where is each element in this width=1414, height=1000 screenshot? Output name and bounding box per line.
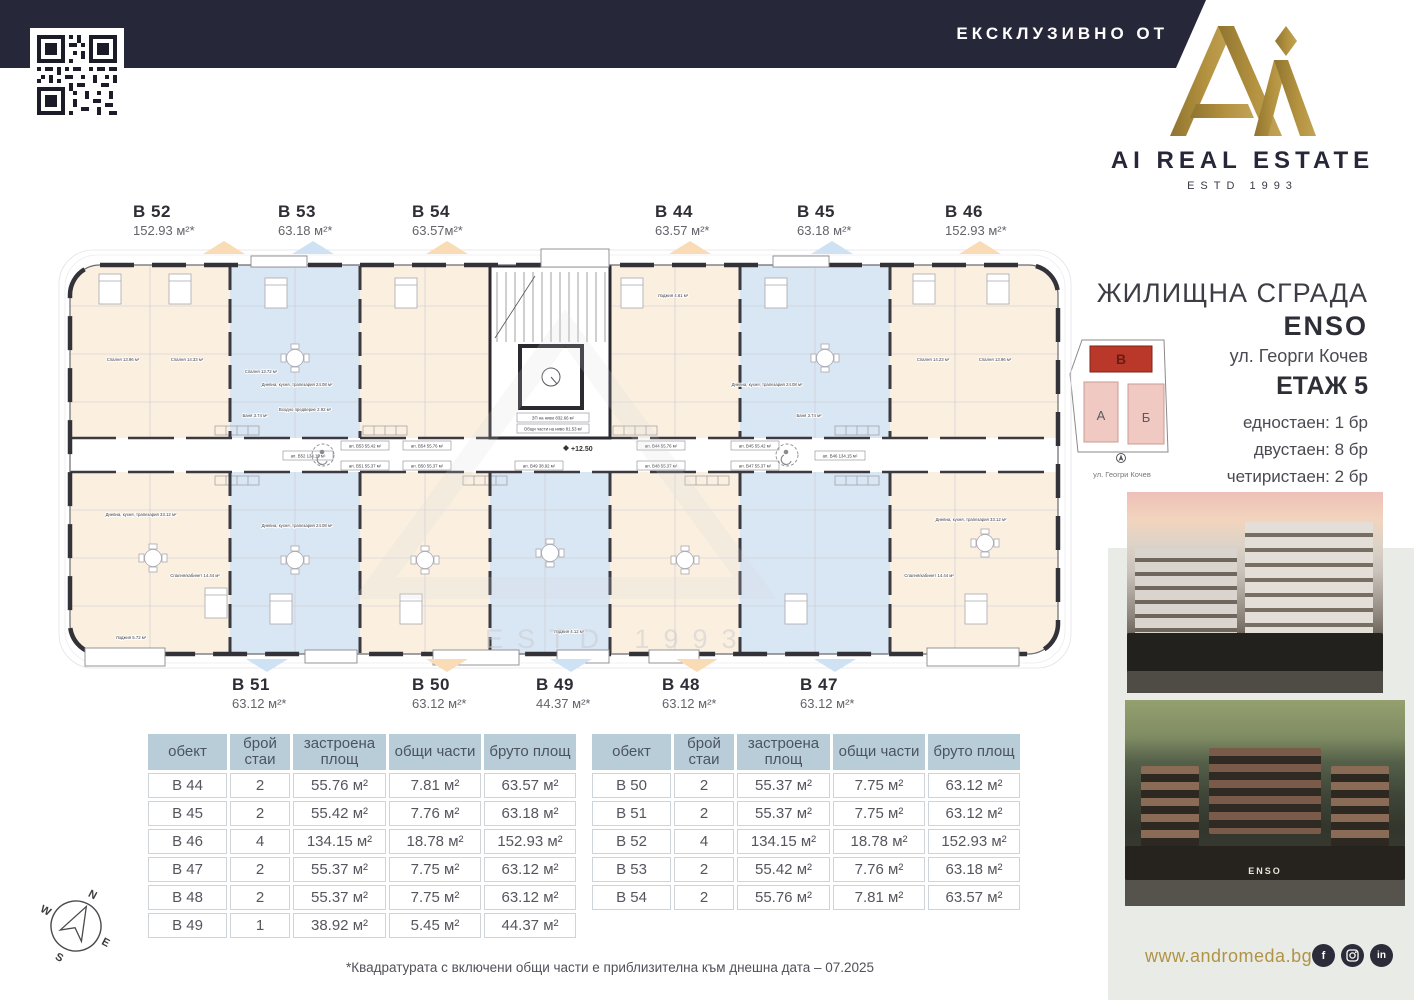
svg-text:Спалня 14.23 м²: Спалня 14.23 м² [917, 357, 950, 362]
table-cell: 38.92 м² [293, 913, 386, 938]
table-cell: 2 [674, 885, 734, 910]
table-cell: B 44 [148, 773, 227, 798]
svg-text:Дневна, кухня, трапезария 24.0: Дневна, кухня, трапезария 24.08 м² [262, 523, 333, 528]
table-cell: B 45 [148, 801, 227, 826]
compass-e: E [99, 936, 111, 950]
building-render-photo-1 [1127, 492, 1383, 693]
compass-n: N [86, 888, 99, 902]
render2-building-center [1209, 748, 1321, 834]
table-cell: B 50 [592, 773, 671, 798]
building-render-photo-2: ENSO [1125, 700, 1405, 906]
table-cell: 63.57 м² [484, 773, 576, 798]
qr-code [30, 28, 124, 122]
unit-label-b46: B 46 152.93 м²* [945, 202, 1075, 254]
unit-label-b52: B 52 152.93 м²* [133, 202, 263, 254]
svg-text:Дневна, кухня, трапезария 33.1: Дневна, кухня, трапезария 33.12 м² [106, 512, 177, 517]
table-cell: 1 [230, 913, 290, 938]
table-cell: 2 [230, 857, 290, 882]
table-cell: 55.42 м² [293, 801, 386, 826]
unit-label-b48: B 48 63.12 м²* [662, 656, 792, 711]
pointer-triangle [959, 241, 1001, 254]
render1-building-right [1245, 522, 1373, 640]
siteplan-label-v: В [1116, 351, 1126, 367]
siteplan-label-a: А [1097, 408, 1106, 423]
render2-building-left [1141, 766, 1199, 854]
svg-text:Спалня/кабинет 14.44 м²: Спалня/кабинет 14.44 м² [904, 573, 954, 578]
pointer-triangle [426, 241, 468, 254]
table-cell: 4 [674, 829, 734, 854]
unit-label-b47: B 47 63.12 м²* [800, 656, 930, 711]
table-cell: 55.42 м² [737, 857, 830, 882]
svg-text:Спалня/кабинет 14.44 м²: Спалня/кабинет 14.44 м² [170, 573, 220, 578]
table-row: B 49138.92 м²5.45 м²44.37 м² [148, 913, 576, 938]
svg-text:Лоджия 5.72 м²: Лоджия 5.72 м² [116, 635, 147, 640]
table-cell: 134.15 м² [737, 829, 830, 854]
pointer-triangle [676, 659, 718, 672]
render1-building-left [1135, 548, 1237, 640]
unit-label-b49: B 49 44.37 м²* [536, 656, 666, 711]
table-row: B 524134.15 м²18.78 м²152.93 м² [592, 829, 1020, 854]
svg-text:Спалня 13.96 м²: Спалня 13.96 м² [107, 357, 140, 362]
footnote: *Квадратурата с включени общи части е пр… [280, 960, 940, 975]
render2-enso-sign: ENSO [1248, 866, 1282, 876]
pointer-triangle [426, 659, 468, 672]
website-link[interactable]: www.andromeda.bg [1145, 946, 1312, 967]
table-cell: 55.76 м² [737, 885, 830, 910]
render2-road [1125, 880, 1405, 906]
col-header: бруто площ [928, 734, 1020, 770]
table-cell: B 48 [148, 885, 227, 910]
compass-rose: N E S W [33, 883, 119, 974]
table-cell: B 46 [148, 829, 227, 854]
linkedin-icon[interactable]: in [1370, 944, 1393, 967]
brand-mountain-icon [1168, 20, 1318, 138]
brand-name: AI REAL ESTATE [1100, 147, 1385, 175]
svg-text:ап. B50 55.37 м²: ап. B50 55.37 м² [411, 464, 444, 469]
table-cell: 55.37 м² [293, 885, 386, 910]
pointer-triangle [292, 241, 334, 254]
table-row: B 45255.42 м²7.76 м²63.18 м² [148, 801, 576, 826]
facebook-icon[interactable]: f [1312, 944, 1335, 967]
table-cell: 63.12 м² [484, 885, 576, 910]
table-cell: 2 [230, 885, 290, 910]
col-header: бруто площ [484, 734, 576, 770]
unit-label-b44: B 44 63.57 м²* [655, 202, 785, 254]
svg-text:+12.50: +12.50 [571, 446, 593, 453]
table-row: B 50255.37 м²7.75 м²63.12 м² [592, 773, 1020, 798]
svg-text:Баня 3.74 м²: Баня 3.74 м² [242, 413, 268, 418]
svg-text:ап. B52 134.15 м²: ап. B52 134.15 м² [291, 454, 326, 459]
table-cell: 7.81 м² [389, 773, 481, 798]
render1-commercial-base [1127, 633, 1383, 671]
svg-text:Баня 3.74 м²: Баня 3.74 м² [796, 413, 822, 418]
svg-text:Дневна, кухня, трапезария 33.1: Дневна, кухня, трапезария 33.12 м² [936, 517, 1007, 522]
svg-text:ап. B49 38.92 м²: ап. B49 38.92 м² [523, 464, 556, 469]
table-cell: 2 [674, 857, 734, 882]
table-cell: 2 [674, 801, 734, 826]
pointer-triangle [246, 659, 288, 672]
table-cell: 55.76 м² [293, 773, 386, 798]
unit-label-b54: B 54 63.57м²* [412, 202, 542, 254]
qr-code-icon [37, 35, 117, 115]
table-cell: 2 [230, 773, 290, 798]
svg-text:ап. B54 55.76 м²: ап. B54 55.76 м² [411, 444, 444, 449]
area-table-left: обект брой стаи застроена площ общи част… [148, 734, 576, 938]
table-cell: 7.76 м² [833, 857, 925, 882]
table-header: обект брой стаи застроена площ общи част… [592, 734, 1020, 770]
brochure-page: ЕКСКЛУЗИВНО ОТ [0, 0, 1414, 1000]
table-cell: 55.37 м² [737, 773, 830, 798]
svg-text:Дневна, кухня, трапезария 24.0: Дневна, кухня, трапезария 24.08 м² [262, 382, 333, 387]
table-cell: 63.12 м² [484, 857, 576, 882]
svg-text:Дневна, кухня, трапезария 24.0: Дневна, кухня, трапезария 24.08 м² [732, 382, 803, 387]
col-header: обект [148, 734, 227, 770]
unit-label-b53: B 53 63.18 м²* [278, 202, 408, 254]
col-header: застроена площ [293, 734, 386, 770]
compass-w: W [38, 903, 53, 919]
table-cell: 4 [230, 829, 290, 854]
table-cell: 7.75 м² [389, 885, 481, 910]
svg-text:ESTD 1993: ESTD 1993 [485, 624, 751, 654]
table-row: B 51255.37 м²7.75 м²63.12 м² [592, 801, 1020, 826]
unit-label-b50: B 50 63.12 м²* [412, 656, 542, 711]
table-cell: 7.76 м² [389, 801, 481, 826]
table-cell: 18.78 м² [389, 829, 481, 854]
col-header: обект [592, 734, 671, 770]
table-cell: 63.18 м² [928, 857, 1020, 882]
svg-text:ап. B46 134.15 м²: ап. B46 134.15 м² [823, 454, 858, 459]
table-cell: 2 [674, 773, 734, 798]
corridor [70, 438, 1058, 472]
svg-text:ап. B47 55.37 м²: ап. B47 55.37 м² [739, 464, 772, 469]
table-cell: B 47 [148, 857, 227, 882]
table-cell: 2 [230, 801, 290, 826]
svg-text:Спалня 14.33 м²: Спалня 14.33 м² [171, 357, 204, 362]
col-header: брой стаи [674, 734, 734, 770]
core-note-2: Общи части на ниво 81.53 м² [524, 427, 583, 432]
table-body: B 44255.76 м²7.81 м²63.57 м²B 45255.42 м… [148, 773, 576, 938]
unit-label-b45: B 45 63.18 м²* [797, 202, 927, 254]
table-cell: B 53 [592, 857, 671, 882]
table-row: B 54255.76 м²7.81 м²63.57 м² [592, 885, 1020, 910]
social-icons: f in [1312, 944, 1393, 967]
pointer-triangle [669, 241, 711, 254]
table-row: B 44255.76 м²7.81 м²63.57 м² [148, 773, 576, 798]
svg-text:ап. B53 55.42 м²: ап. B53 55.42 м² [349, 444, 382, 449]
svg-text:Входно предверие 2.92 м²: Входно предверие 2.92 м² [279, 407, 332, 412]
floor-plan: ЗП на ниво 832.66 м² Общи части на ниво … [57, 248, 1073, 675]
table-cell: 134.15 м² [293, 829, 386, 854]
table-cell: 152.93 м² [484, 829, 576, 854]
site-plan: В А Б ул. Геогри Кочев [1066, 330, 1188, 487]
table-body: B 50255.37 м²7.75 м²63.12 м²B 51255.37 м… [592, 773, 1020, 910]
compass-s: S [53, 951, 65, 965]
col-header: общи части [389, 734, 481, 770]
siteplan-label-b: Б [1142, 410, 1151, 425]
col-header: застроена площ [737, 734, 830, 770]
unit-label-b51: B 51 63.12 м²* [232, 656, 362, 711]
table-cell: 63.18 м² [484, 801, 576, 826]
col-header: брой стаи [230, 734, 290, 770]
brand-estd: ESTD 1993 [1100, 180, 1385, 192]
render1-road [1127, 671, 1383, 693]
table-cell: 7.81 м² [833, 885, 925, 910]
table-row: B 48255.37 м²7.75 м²63.12 м² [148, 885, 576, 910]
brand-logo-block: AI REAL ESTATE ESTD 1993 [1100, 20, 1385, 192]
svg-text:ап. B45 55.42 м²: ап. B45 55.42 м² [739, 444, 772, 449]
table-cell: 63.12 м² [928, 801, 1020, 826]
render2-building-right [1331, 766, 1389, 854]
table-cell: 7.75 м² [389, 857, 481, 882]
table-cell: 7.75 м² [833, 801, 925, 826]
pointer-triangle [811, 241, 853, 254]
svg-text:ап. B51 55.37 м²: ап. B51 55.37 м² [349, 464, 382, 469]
table-cell: B 52 [592, 829, 671, 854]
area-table-right: обект брой стаи застроена площ общи част… [592, 734, 1020, 910]
svg-text:Спалня 13.72 м²: Спалня 13.72 м² [245, 369, 278, 374]
pointer-triangle [203, 241, 245, 254]
svg-text:Спалня 13.96 м²: Спалня 13.96 м² [979, 357, 1012, 362]
siteplan-caption: ул. Геогри Кочев [1093, 470, 1151, 479]
table-header: обект брой стаи застроена площ общи част… [148, 734, 576, 770]
table-cell: 44.37 м² [484, 913, 576, 938]
table-cell: B 51 [592, 801, 671, 826]
instagram-icon[interactable] [1341, 944, 1364, 967]
core-note-1: ЗП на ниво 832.66 м² [532, 416, 575, 421]
table-cell: 18.78 м² [833, 829, 925, 854]
table-row: B 53255.42 м²7.76 м²63.18 м² [592, 857, 1020, 882]
table-cell: B 49 [148, 913, 227, 938]
table-cell: 63.57 м² [928, 885, 1020, 910]
svg-text:Лоджия 4.61 м²: Лоджия 4.61 м² [658, 293, 689, 298]
table-cell: 55.37 м² [293, 857, 386, 882]
pointer-triangle [814, 659, 856, 672]
table-cell: 5.45 м² [389, 913, 481, 938]
pointer-triangle [550, 659, 592, 672]
table-cell: 55.37 м² [737, 801, 830, 826]
table-cell: 7.75 м² [833, 773, 925, 798]
table-row: B 464134.15 м²18.78 м²152.93 м² [148, 829, 576, 854]
table-row: B 47255.37 м²7.75 м²63.12 м² [148, 857, 576, 882]
col-header: общи части [833, 734, 925, 770]
table-cell: B 54 [592, 885, 671, 910]
table-cell: 152.93 м² [928, 829, 1020, 854]
table-cell: 63.12 м² [928, 773, 1020, 798]
